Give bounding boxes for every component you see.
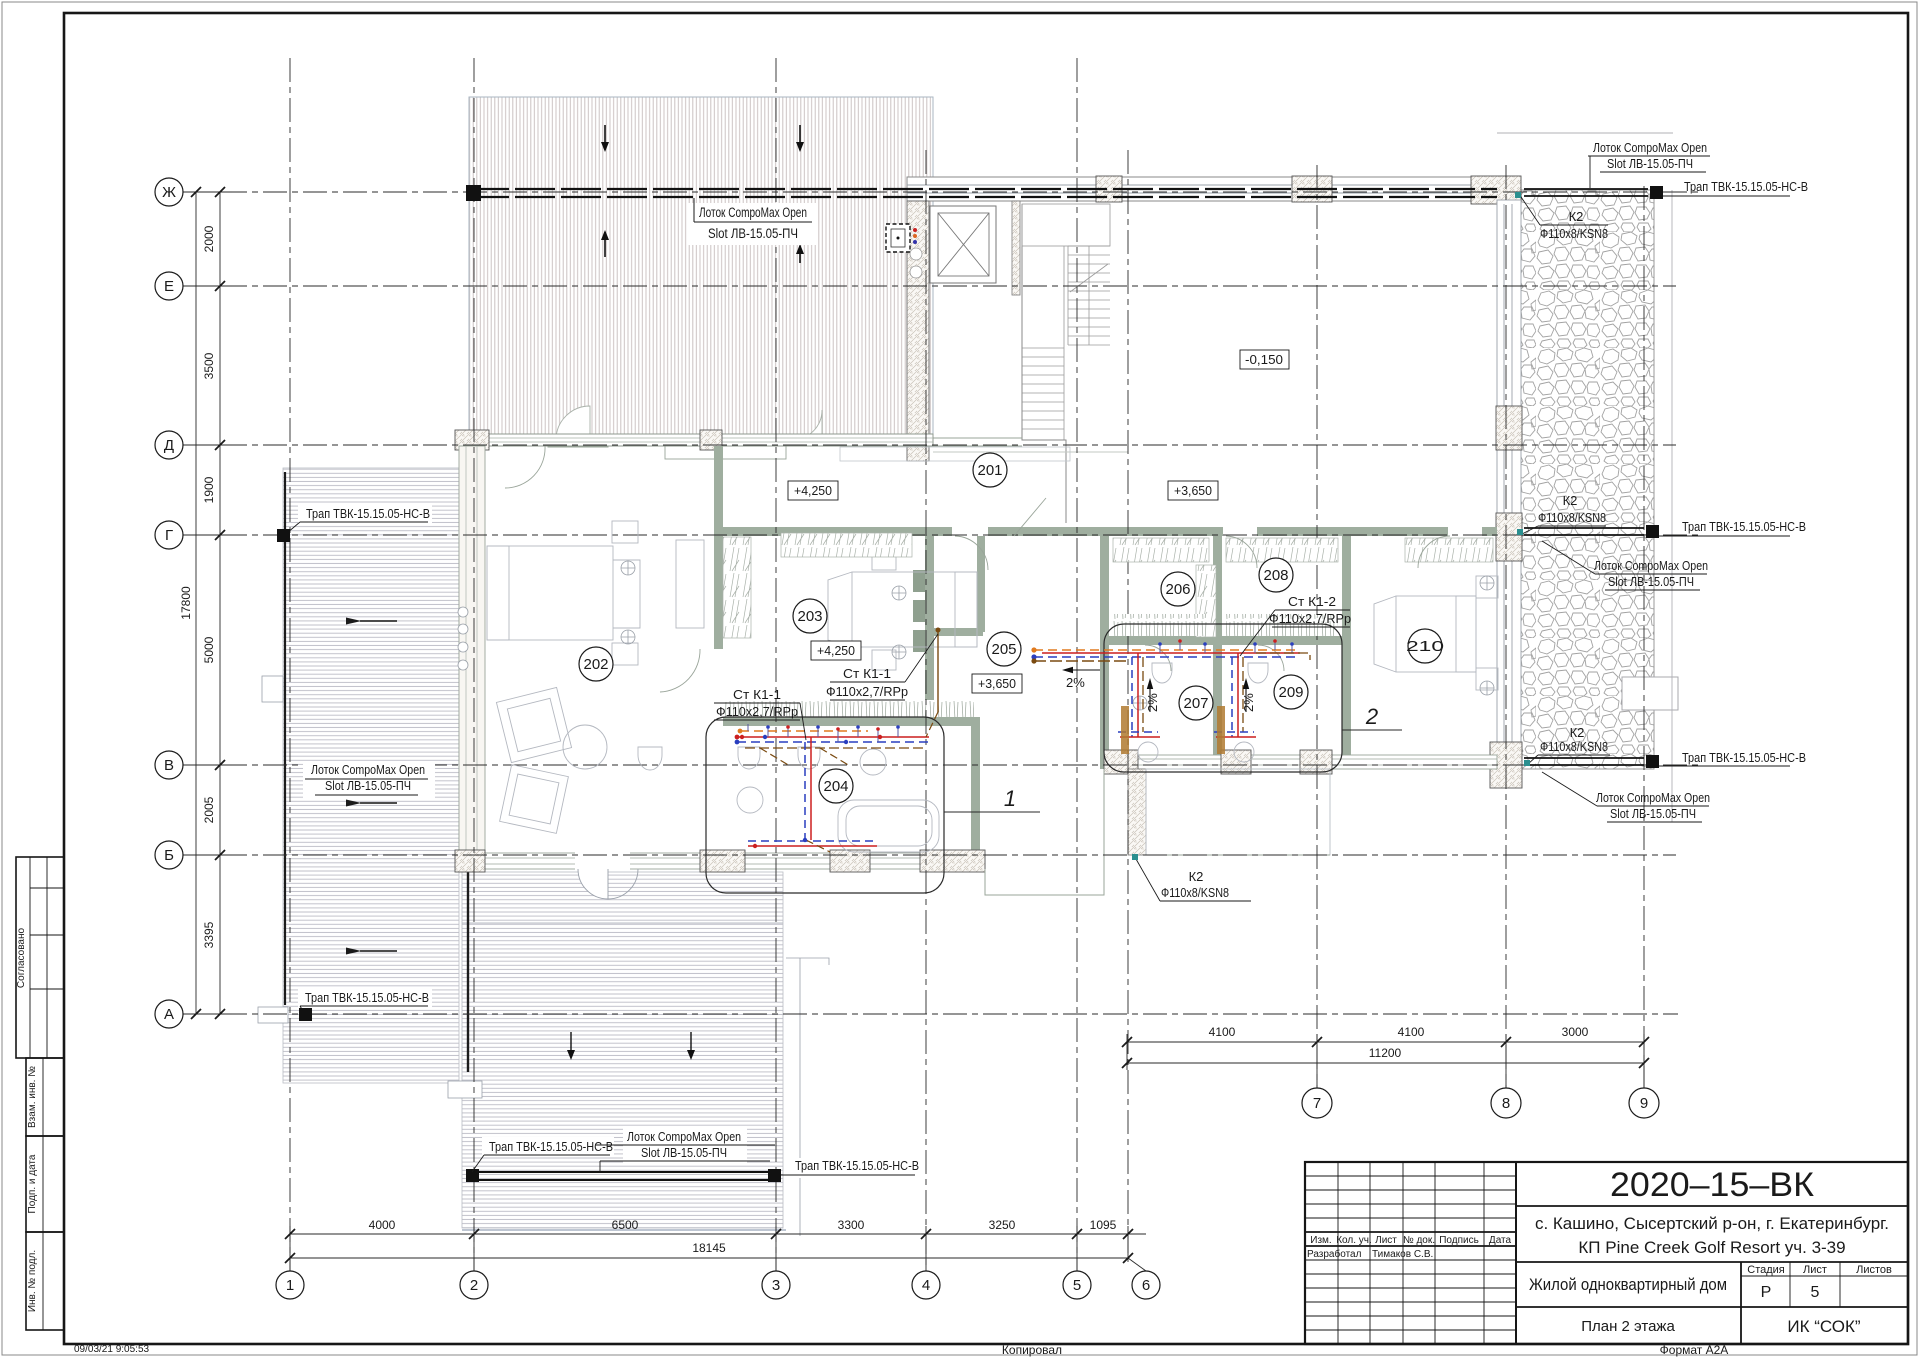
svg-text:Трап ТВК-15.15.05-НС-В: Трап ТВК-15.15.05-НС-В <box>489 1139 613 1154</box>
svg-text:Ст К1-2: Ст К1-2 <box>1288 594 1336 609</box>
svg-text:Ф110х2,7/RPp: Ф110х2,7/RPp <box>826 684 908 699</box>
svg-text:Тимаков С.В.: Тимаков С.В. <box>1372 1249 1433 1260</box>
svg-text:Б: Б <box>164 847 174 864</box>
svg-text:3500: 3500 <box>202 352 216 379</box>
svg-text:207: 207 <box>1183 695 1208 712</box>
svg-text:Slot ЛВ-15.05-ПЧ: Slot ЛВ-15.05-ПЧ <box>641 1145 727 1160</box>
svg-text:№ док.: № док. <box>1403 1235 1435 1246</box>
svg-text:204: 204 <box>823 778 848 795</box>
svg-text:К2: К2 <box>1570 725 1585 740</box>
svg-text:Лоток CompoMax Open: Лоток CompoMax Open <box>1596 790 1710 805</box>
svg-text:А: А <box>164 1006 174 1023</box>
svg-text:2: 2 <box>470 1277 478 1294</box>
svg-text:Лист: Лист <box>1803 1264 1827 1276</box>
svg-text:Дата: Дата <box>1489 1235 1512 1246</box>
svg-text:План 2 этажа: План 2 этажа <box>1581 1318 1675 1335</box>
svg-text:ИК “СОК”: ИК “СОК” <box>1787 1317 1861 1336</box>
svg-text:Трап ТВК-15.15.05-НС-В: Трап ТВК-15.15.05-НС-В <box>306 506 430 521</box>
svg-text:Подпись: Подпись <box>1439 1235 1479 1246</box>
svg-text:2005: 2005 <box>202 796 216 823</box>
svg-text:1: 1 <box>1004 786 1016 811</box>
svg-text:3300: 3300 <box>838 1218 865 1232</box>
svg-text:Лоток CompoMax Open: Лоток CompoMax Open <box>1594 558 1708 573</box>
svg-text:В: В <box>164 757 174 774</box>
svg-text:Slot ЛВ-15.05-ПЧ: Slot ЛВ-15.05-ПЧ <box>1608 574 1694 589</box>
svg-text:208: 208 <box>1263 567 1288 584</box>
svg-text:2%: 2% <box>1241 693 1256 712</box>
svg-text:КП Pine Creek Golf Resort уч.: КП Pine Creek Golf Resort уч. 3-39 <box>1578 1238 1845 1257</box>
svg-text:18145: 18145 <box>692 1241 726 1255</box>
svg-text:Согласовано: Согласовано <box>16 928 27 989</box>
svg-text:с. Кашино, Сысертский р-он, г.: с. Кашино, Сысертский р-он, г. Екатеринб… <box>1535 1214 1889 1233</box>
svg-text:Slot ЛВ-15.05-ПЧ: Slot ЛВ-15.05-ПЧ <box>1610 806 1696 821</box>
svg-text:Копировал: Копировал <box>1002 1343 1062 1357</box>
svg-text:Взам. инв. №: Взам. инв. № <box>27 1066 38 1128</box>
svg-text:2000: 2000 <box>202 225 216 252</box>
svg-text:Лоток CompoMax Open: Лоток CompoMax Open <box>699 205 807 220</box>
svg-text:Лоток CompoMax Open: Лоток CompoMax Open <box>311 762 425 777</box>
svg-text:205: 205 <box>991 641 1016 658</box>
svg-text:1095: 1095 <box>1090 1218 1117 1232</box>
svg-text:Ф110х8/KSN8: Ф110х8/KSN8 <box>1161 885 1229 900</box>
svg-text:Листов: Листов <box>1856 1264 1892 1276</box>
svg-text:Slot ЛВ-15.05-ПЧ: Slot ЛВ-15.05-ПЧ <box>708 226 798 241</box>
svg-text:Ф110х2,7/RPp: Ф110х2,7/RPp <box>716 704 798 719</box>
svg-text:Разработал: Разработал <box>1307 1248 1362 1260</box>
svg-text:Стадия: Стадия <box>1747 1264 1785 1276</box>
svg-text:Лоток CompoMax Open: Лоток CompoMax Open <box>1593 140 1707 155</box>
svg-text:5: 5 <box>1073 1277 1081 1294</box>
svg-text:Е: Е <box>164 278 174 295</box>
svg-text:+3,650: +3,650 <box>1174 483 1212 498</box>
svg-text:4100: 4100 <box>1209 1025 1236 1039</box>
svg-text:202: 202 <box>583 656 608 673</box>
svg-text:206: 206 <box>1165 581 1190 598</box>
svg-text:Трап ТВК-15.15.05-НС-В: Трап ТВК-15.15.05-НС-В <box>795 1158 919 1173</box>
svg-text:6500: 6500 <box>612 1218 639 1232</box>
svg-text:Трап ТВК-15.15.05-НС-В: Трап ТВК-15.15.05-НС-В <box>1682 750 1806 765</box>
svg-text:Изм.: Изм. <box>1310 1235 1331 1246</box>
svg-text:Трап ТВК-15.15.05-НС-В: Трап ТВК-15.15.05-НС-В <box>305 990 429 1005</box>
svg-text:2020–15–ВК: 2020–15–ВК <box>1610 1166 1814 1204</box>
svg-text:Ст К1-1: Ст К1-1 <box>733 687 781 702</box>
svg-text:17800: 17800 <box>179 586 193 620</box>
svg-text:3: 3 <box>772 1277 780 1294</box>
svg-text:Трап ТВК-15.15.05-НС-В: Трап ТВК-15.15.05-НС-В <box>1684 179 1808 194</box>
svg-text:210: 210 <box>1406 638 1444 655</box>
svg-text:-0,150: -0,150 <box>1245 352 1283 367</box>
svg-text:1900: 1900 <box>202 476 216 503</box>
svg-text:Д: Д <box>164 437 174 454</box>
svg-text:Ст К1-1: Ст К1-1 <box>843 666 891 681</box>
svg-text:5: 5 <box>1811 1284 1820 1301</box>
svg-text:2: 2 <box>1365 704 1378 729</box>
svg-text:Лист: Лист <box>1375 1235 1397 1246</box>
svg-text:7: 7 <box>1313 1095 1321 1112</box>
svg-text:+4,250: +4,250 <box>817 643 855 658</box>
svg-text:2%: 2% <box>1066 675 1085 690</box>
svg-text:Жилой одноквартирный дом: Жилой одноквартирный дом <box>1529 1275 1727 1294</box>
svg-text:Ф110х2,7/RPp: Ф110х2,7/RPp <box>1269 611 1351 626</box>
svg-text:3250: 3250 <box>989 1218 1016 1232</box>
svg-text:09/03/21 9:05:53: 09/03/21 9:05:53 <box>74 1344 150 1355</box>
svg-text:Slot ЛВ-15.05-ПЧ: Slot ЛВ-15.05-ПЧ <box>1607 156 1693 171</box>
svg-text:Р: Р <box>1761 1284 1772 1301</box>
svg-text:11200: 11200 <box>1369 1046 1402 1060</box>
svg-text:Ф110х8/KSN8: Ф110х8/KSN8 <box>1540 739 1608 754</box>
svg-text:9: 9 <box>1640 1095 1648 1112</box>
svg-text:Трап ТВК-15.15.05-НС-В: Трап ТВК-15.15.05-НС-В <box>1682 519 1806 534</box>
svg-text:Slot ЛВ-15.05-ПЧ: Slot ЛВ-15.05-ПЧ <box>325 778 411 793</box>
svg-text:Г: Г <box>165 527 173 544</box>
svg-text:Ф110х8/KSN8: Ф110х8/KSN8 <box>1538 510 1606 525</box>
svg-text:4000: 4000 <box>369 1218 396 1232</box>
svg-text:Подп. и дата: Подп. и дата <box>27 1154 38 1213</box>
svg-text:4: 4 <box>922 1277 930 1294</box>
svg-text:+3,650: +3,650 <box>978 676 1016 691</box>
svg-text:Кол. уч.: Кол. уч. <box>1336 1235 1372 1246</box>
svg-text:201: 201 <box>977 462 1002 479</box>
svg-text:К2: К2 <box>1189 869 1204 884</box>
svg-text:1: 1 <box>286 1277 294 1294</box>
svg-text:+4,250: +4,250 <box>794 483 832 498</box>
svg-text:Лоток CompoMax Open: Лоток CompoMax Open <box>627 1129 741 1144</box>
svg-text:К2: К2 <box>1569 209 1584 224</box>
svg-text:5000: 5000 <box>202 636 216 663</box>
svg-text:3395: 3395 <box>202 921 216 948</box>
svg-text:4100: 4100 <box>1398 1025 1425 1039</box>
svg-text:Инв. № подл.: Инв. № подл. <box>27 1250 38 1312</box>
svg-text:2%: 2% <box>1145 693 1160 712</box>
svg-text:Ф110х8/KSN8: Ф110х8/KSN8 <box>1540 226 1608 241</box>
svg-text:3000: 3000 <box>1562 1025 1589 1039</box>
svg-text:К2: К2 <box>1563 493 1578 508</box>
svg-text:209: 209 <box>1278 684 1303 701</box>
svg-text:Ж: Ж <box>162 184 176 201</box>
svg-text:203: 203 <box>797 608 822 625</box>
svg-text:8: 8 <box>1502 1095 1510 1112</box>
svg-text:6: 6 <box>1142 1277 1150 1294</box>
